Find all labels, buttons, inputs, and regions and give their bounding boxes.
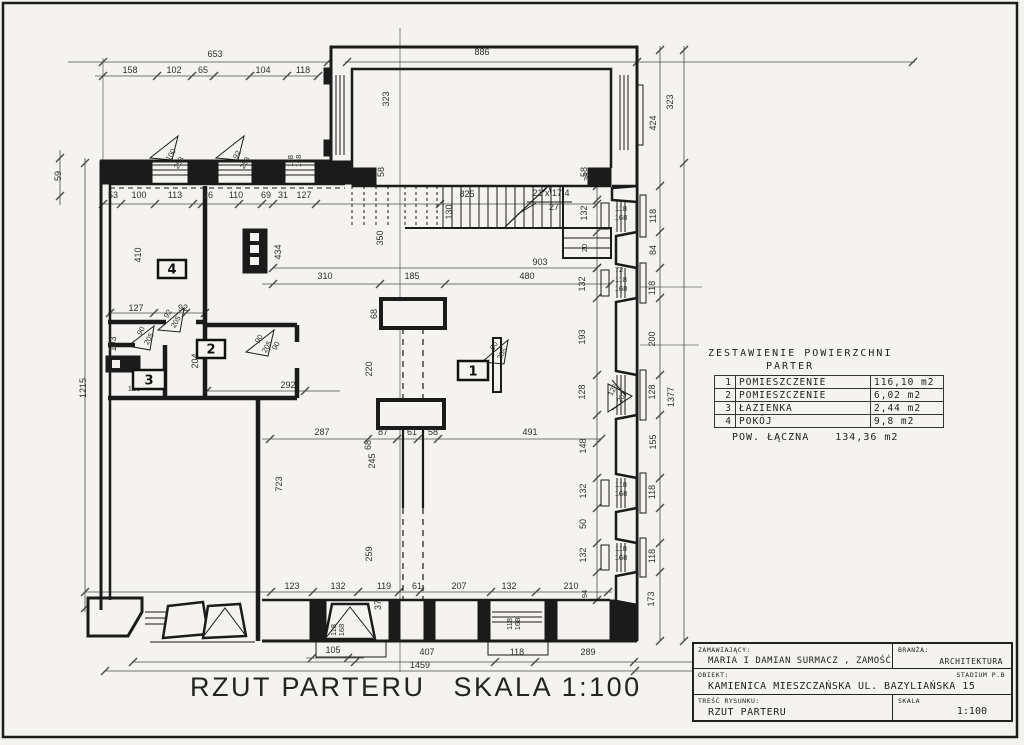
dim-label: 118 — [647, 281, 657, 295]
dim-label: 128 — [577, 384, 587, 399]
dim-label: 21 x 17.4 — [532, 188, 569, 198]
dim-label: 168 — [615, 553, 628, 562]
dim-label: 118 — [615, 275, 627, 284]
area-table-row: 3ŁAZIENKA2,44 m2 — [715, 402, 944, 415]
room-number: 3 — [144, 374, 153, 389]
dim-label: 210 — [563, 581, 578, 591]
dim-label: 118 — [615, 544, 627, 553]
dim-label: 259 — [364, 546, 374, 561]
dim-label: 168 — [615, 284, 628, 293]
dim-label: 491 — [522, 427, 537, 437]
dim-label: 132 — [330, 581, 345, 591]
area-table-cell: 9,8 m2 — [871, 415, 944, 428]
dim-label: 20 — [580, 244, 589, 252]
dim-label: 168 — [513, 618, 522, 631]
area-table-row: 1POMIESZCZENIE116,10 m2 — [715, 376, 944, 389]
area-table-cell: 3 — [715, 402, 736, 415]
branch-label: BRANŻA: — [898, 646, 929, 654]
pillars — [378, 299, 445, 600]
dim-label: 185 — [404, 271, 419, 281]
dim-label: 168 — [337, 624, 346, 637]
dim-label: 723 — [274, 476, 284, 491]
dim-label: 158 — [122, 65, 137, 75]
scale-value: 1:100 — [957, 706, 987, 717]
dim-label: 119 — [377, 581, 391, 591]
area-table-row: 4POKÓJ9,8 m2 — [715, 415, 944, 428]
dim-label: 118 — [647, 549, 657, 563]
dim-label: 289 — [580, 647, 595, 657]
room-number: 4 — [167, 263, 176, 278]
dim-label: 480 — [519, 271, 534, 281]
area-table-subtitle: PARTER — [766, 361, 946, 372]
dim-label: 148 — [578, 438, 588, 453]
area-table-cell: ŁAZIENKA — [736, 402, 871, 415]
area-table-cell: 116,10 m2 — [871, 376, 944, 389]
dim-label: 94 — [580, 590, 589, 598]
dim-label: 102 — [166, 65, 181, 75]
total-label: POW. ŁĄCZNA — [732, 432, 809, 443]
dim-label: 104 — [255, 65, 270, 75]
object-value: KAMIENICA MIESZCZAŃSKA UL. BAZYLIAŃSKA 1… — [708, 681, 975, 692]
dim-label: 113 — [168, 190, 182, 200]
dim-label: 68 — [363, 440, 373, 450]
dim-label: 200 — [647, 331, 657, 346]
dim-label: 132 — [578, 483, 588, 498]
dim-label: 127 — [296, 190, 311, 200]
dim-label: 58 — [428, 427, 438, 437]
area-table-cell: 2 — [715, 389, 736, 402]
dim-label: 118 — [648, 209, 658, 223]
dim-label: 118 — [615, 480, 627, 489]
dim-label: 292 — [280, 380, 295, 390]
branch-cell: BRANŻA: ARCHITEKTURA — [892, 644, 1011, 668]
dim-label: 36 — [582, 173, 591, 181]
dim-label: 132 — [577, 276, 587, 291]
dim-label: 424 — [648, 115, 658, 130]
total-value: 134,36 m2 — [835, 432, 898, 443]
stage-value: STADIUM P.B — [956, 671, 1005, 679]
dim-label: 58 — [376, 167, 386, 177]
client-label: ZAMAWIAJĄCY: — [698, 646, 751, 654]
dim-label: 220 — [364, 361, 374, 376]
drawing-value: RZUT PARTERU — [708, 707, 786, 718]
area-table-grid: 1POMIESZCZENIE116,10 m22POMIESZCZENIE6,0… — [714, 375, 944, 428]
area-table-total: POW. ŁĄCZNA 134,36 m2 — [732, 432, 946, 443]
dim-label: 103 — [108, 336, 118, 351]
dim-label: 323 — [665, 94, 675, 109]
caption-scale: SKALA 1:100 — [454, 672, 642, 703]
dim-labels: 6531581026510411888653100113261106931127… — [53, 47, 676, 670]
dim-label: 245 — [367, 453, 377, 468]
dim-label: 193 — [577, 329, 587, 344]
drawing-caption: RZUT PARTERU SKALA 1:100 — [190, 672, 642, 703]
object-label: OBIEKT: — [698, 671, 729, 679]
area-table-title: ZESTAWIENIE POWIERZCHNI — [708, 348, 946, 359]
dim-label: 118 — [647, 485, 657, 499]
dim-label: 287 — [314, 427, 329, 437]
area-table-cell: POKÓJ — [736, 415, 871, 428]
dim-label: 128 — [647, 384, 657, 399]
dim-label: 132 — [579, 205, 589, 220]
dim-label: 825 — [459, 189, 474, 199]
dim-label: 207 — [451, 581, 466, 591]
drawing-label: TREŚĆ RYSUNKU: — [698, 697, 760, 705]
branch-value: ARCHITEKTURA — [939, 657, 1003, 666]
dim-label: 168 — [294, 155, 303, 168]
dim-label: 168 — [615, 489, 628, 498]
dim-label: 410 — [133, 247, 143, 262]
dim-label: 61 — [407, 427, 417, 437]
scale-cell: SKALA 1:100 — [892, 695, 1011, 720]
dim-label: 168 — [615, 213, 628, 222]
title-block-drawing-row: TREŚĆ RYSUNKU: RZUT PARTERU SKALA 1:100 — [694, 695, 1011, 720]
dim-label: 31 — [278, 190, 288, 200]
dim-label: 130 — [444, 204, 454, 219]
dim-label: 132 — [501, 581, 516, 591]
area-table-row: 2POMIESZCZENIE6,02 m2 — [715, 389, 944, 402]
dim-label: 434 — [273, 244, 283, 259]
dim-label: 26 — [203, 190, 213, 200]
area-table-cell: 4 — [715, 415, 736, 428]
dim-label: 123 — [284, 581, 299, 591]
title-block: ZAMAWIAJĄCY: MARIA I DAMIAN SURMACZ , ZA… — [692, 642, 1013, 722]
dim-label: 92 — [178, 303, 188, 313]
dim-label: 27 — [549, 202, 559, 212]
dim-label: 1377 — [666, 387, 676, 407]
dim-label: 84 — [648, 245, 658, 255]
dim-label: 886 — [474, 47, 489, 57]
dim-label: 310 — [317, 271, 332, 281]
dim-label: 100 — [131, 190, 146, 200]
dim-label: 37 — [373, 600, 383, 610]
dim-label: 53 — [108, 190, 118, 200]
dim-label: 61 — [412, 581, 422, 591]
dim-label: 653 — [207, 49, 222, 59]
drawing-sheet: 6531581026510411888653100113261106931127… — [0, 0, 1024, 745]
dim-label: 118 — [296, 65, 310, 75]
room-number: 1 — [468, 365, 477, 380]
dim-label: 68 — [369, 309, 379, 319]
area-summary-table: ZESTAWIENIE POWIERZCHNI PARTER 1POMIESZC… — [708, 348, 946, 443]
client-value: MARIA I DAMIAN SURMACZ , ZAMOŚĆ — [708, 656, 891, 666]
dim-label: 127 — [128, 303, 143, 313]
dim-label: 118 — [615, 204, 627, 213]
dim-label: 69 — [261, 190, 271, 200]
dim-label: 132 — [578, 547, 588, 562]
area-table-cell: 1 — [715, 376, 736, 389]
room-number: 2 — [206, 343, 215, 358]
dim-label: 350 — [375, 230, 385, 245]
dim-label: 1215 — [78, 378, 88, 398]
dim-label: 65 — [198, 65, 208, 75]
area-table-cell: POMIESZCZENIE — [736, 389, 871, 402]
dim-label: 72 — [615, 265, 623, 274]
caption-title: RZUT PARTERU — [190, 672, 426, 703]
dim-label: 173 — [646, 591, 656, 606]
dim-label: 118 — [510, 647, 524, 657]
dim-label: 59 — [53, 171, 63, 181]
area-table-cell: POMIESZCZENIE — [736, 376, 871, 389]
dim-label: 323 — [381, 91, 391, 106]
area-table-cell: 2,44 m2 — [871, 402, 944, 415]
dim-label: 903 — [532, 257, 547, 267]
scale-label: SKALA — [898, 697, 920, 705]
dim-label: 87 — [378, 427, 388, 437]
dim-label: 105 — [325, 645, 340, 655]
dim-label: 155 — [648, 434, 658, 449]
title-block-client-row: ZAMAWIAJĄCY: MARIA I DAMIAN SURMACZ , ZA… — [694, 644, 1011, 669]
dim-label: 1459 — [410, 660, 430, 670]
title-block-object-row: OBIEKT: STADIUM P.B KAMIENICA MIESZCZAŃS… — [694, 669, 1011, 695]
dim-label: 407 — [419, 647, 434, 657]
area-table-cell: 6,02 m2 — [871, 389, 944, 402]
dim-label: 50 — [578, 519, 588, 529]
dim-label: 110 — [229, 190, 243, 200]
